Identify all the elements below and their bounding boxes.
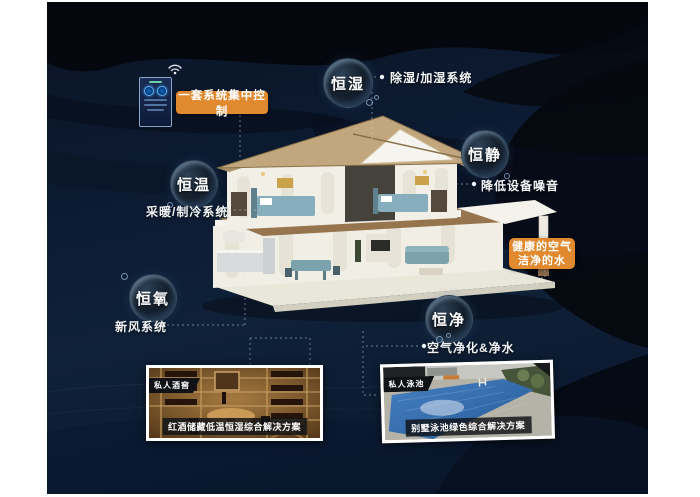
panel-title-bar [149, 81, 162, 83]
bubble-satellite [366, 99, 373, 106]
tv [371, 240, 390, 251]
infographic-poster: 一套系统集中控制 健康的空气 洁净的水 恒湿 恒静 恒温 恒氧 恒净 除湿/加湿… [0, 0, 700, 497]
control-label: 一套系统集中控制 [176, 91, 268, 114]
wine-cellar-card: 私人酒窖 红酒储藏低温恒湿综合解决方案 [146, 365, 323, 441]
wine-cellar-caption: 红酒储藏低温恒湿综合解决方案 [162, 418, 307, 435]
feature-temperature: 采暖/制冷系统 [146, 203, 228, 220]
panel-dial-left [144, 86, 154, 96]
upper-opening [345, 163, 395, 222]
bubble-quiet: 恒静 [461, 130, 509, 178]
pool-caption: 别墅泳池绿色综合解决方案 [405, 416, 531, 437]
page-margin [0, 0, 47, 497]
banner-line1: 健康的空气 [512, 240, 572, 254]
bubble-satellite [121, 273, 128, 280]
pool-card: 私人泳池 别墅泳池绿色综合解决方案 [380, 360, 555, 444]
feature-humidity: 除湿/加湿系统 [390, 69, 472, 86]
wifi-icon [167, 59, 185, 75]
panel-row [144, 99, 167, 101]
page-margin [648, 0, 700, 497]
panel-row [144, 104, 167, 106]
panel-dial-right [157, 86, 167, 96]
feature-oxygen: 新风系统 [115, 318, 167, 335]
feature-purity: 空气净化&净水 [427, 339, 515, 356]
banner-line2: 洁净的水 [512, 254, 572, 268]
bubble-satellite [446, 333, 451, 338]
bubble-temperature: 恒温 [170, 160, 218, 208]
feature-quiet: 降低设备噪音 [481, 177, 559, 194]
bubble-oxygen: 恒氧 [129, 274, 177, 322]
air-water-banner: 健康的空气 洁净的水 [509, 238, 575, 269]
sofa [405, 250, 449, 264]
page-margin [0, 0, 700, 2]
pool-tag: 私人泳池 [383, 376, 434, 392]
dining-table [291, 260, 331, 271]
bubble-satellite [374, 95, 379, 100]
panel-row [147, 109, 163, 111]
kitchen-cabinets [217, 250, 267, 272]
wine-cellar-tag: 私人酒窖 [149, 378, 200, 393]
smart-control-panel [139, 77, 172, 127]
